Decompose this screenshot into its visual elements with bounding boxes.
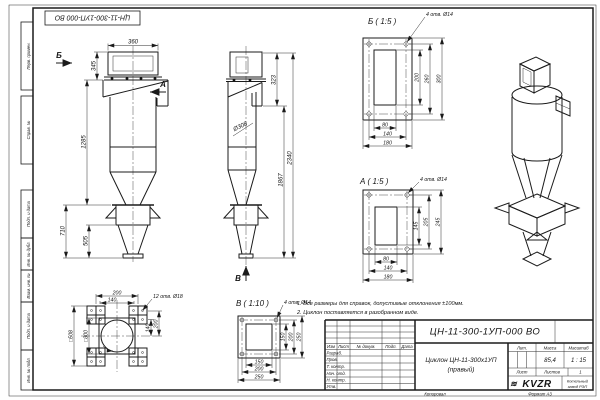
- bottom-dim-200-right: 200: [154, 320, 160, 330]
- detail-a-dim-140: 140: [384, 266, 393, 272]
- drawing-sheet: Перв. примен. Справ. № Подп. и дата Инв.…: [0, 0, 600, 400]
- tb-scale-value: 1 : 15: [571, 358, 587, 364]
- front-view: 360 345 1285 710 505 Б А: [56, 40, 168, 263]
- detail-a-dim-145: 145: [414, 222, 420, 231]
- bottom-dim-200-top: 200: [112, 291, 122, 297]
- tb-company-line2: завод РЭП: [567, 384, 588, 389]
- front-dim-710: 710: [61, 225, 67, 236]
- bottom-holes-label: 12 отв. Ø18: [153, 294, 183, 300]
- detail-a-dim-80: 80: [383, 257, 389, 263]
- side-dim-dia308: Ø308: [232, 121, 249, 134]
- tb-row-utv: Утв.: [327, 384, 337, 389]
- detail-b-dim-200: 200: [415, 73, 421, 83]
- tb-row-tkontr: Т. контр.: [327, 364, 346, 369]
- margin-label-vzam: Взам. инв. №: [26, 273, 31, 299]
- margin-label-podp1: Подп. и дата: [26, 200, 31, 226]
- note-2: 2. Циклон поставляется в разобранном вид…: [296, 310, 419, 316]
- detail-b-holes-label: 4 отв. Ø14: [426, 12, 453, 18]
- margin-label-inv-podl: Инв. № подл.: [26, 357, 31, 382]
- front-arrow-b-label: Б: [56, 51, 62, 60]
- tb-sheets-value: 1: [579, 370, 582, 375]
- bottom-dim-140-top: 140: [108, 298, 117, 304]
- detail-v-dim-150r: 150: [281, 333, 287, 342]
- side-arrow-v-label: В: [235, 274, 241, 283]
- detail-view-b: Б ( 1:5 ) 4 отв. Ø14 200 260 300 80 140 …: [363, 12, 453, 149]
- side-dim-323: 323: [272, 74, 278, 85]
- detail-b-title: Б ( 1:5 ): [368, 17, 397, 26]
- bottom-view: 200 140 12 отв. Ø18 140 200 □300 □508: [69, 291, 183, 373]
- tb-row-prov: Пров.: [327, 357, 338, 362]
- tb-col-docnum: № докум.: [357, 344, 376, 349]
- detail-a-dim-205: 205: [424, 218, 430, 228]
- detail-v-title: В ( 1:10 ): [236, 299, 269, 308]
- side-dim-1867: 1867: [279, 173, 285, 187]
- top-stamp-doc-number: ЦН-11-300-1УП-000 ВО: [54, 14, 130, 21]
- tb-mass-label: Масса: [544, 346, 557, 351]
- tb-col-podp: Подп.: [385, 344, 396, 349]
- detail-a-title: А ( 1:5 ): [359, 177, 389, 186]
- technical-notes: 1. Все размеры для справок, допустимые о…: [296, 301, 464, 316]
- front-arrow-a-label: А: [159, 80, 166, 89]
- bottom-dim-sq508: □508: [69, 330, 75, 342]
- front-dim-505: 505: [84, 235, 90, 246]
- tb-scale-label: Масштаб: [568, 346, 589, 351]
- bottom-dim-sq300: □300: [84, 330, 90, 342]
- tb-mass-value: 85,4: [544, 358, 556, 364]
- title-block: Изм Лист № докум. Подп. Дата Разраб. Про…: [325, 320, 593, 390]
- detail-v-dim-200b: 200: [254, 367, 264, 373]
- detail-b-dim-80: 80: [382, 123, 388, 129]
- detail-b-dim-180: 180: [383, 141, 392, 147]
- detail-b-dim-300: 300: [437, 75, 443, 84]
- margin-label-inv-dubl: Инв. № дубл.: [26, 241, 31, 266]
- logo-wave-icon: ≋: [510, 380, 518, 389]
- note-1: 1. Все размеры для справок, допустимые о…: [297, 301, 464, 307]
- detail-v-dim-250b: 250: [254, 375, 264, 381]
- company-logo: KVZR: [522, 379, 552, 390]
- detail-v-dim-150b: 150: [255, 360, 264, 366]
- tb-doc-number: ЦН-11-300-1УП-000 ВО: [430, 327, 541, 338]
- tb-col-izm: Изм: [327, 344, 335, 349]
- tb-row-nachotd: Нач. отд.: [327, 371, 346, 376]
- detail-a-dim-245: 245: [436, 218, 442, 228]
- tb-row-razrab: Разраб.: [327, 351, 343, 356]
- detail-v-dim-200r: 200: [289, 333, 295, 343]
- tb-company-line1: Котельный: [567, 379, 589, 384]
- tb-col-list: Лист: [337, 344, 349, 349]
- drawing-canvas: Перв. примен. Справ. № Подп. и дата Инв.…: [0, 0, 600, 400]
- front-dim-345: 345: [92, 60, 98, 71]
- detail-b-dim-260: 260: [425, 75, 431, 85]
- detail-b-dim-140: 140: [383, 132, 392, 138]
- front-dim-1285: 1285: [82, 135, 88, 149]
- bottom-dim-140-right: 140: [146, 324, 152, 333]
- detail-view-a: А ( 1:5 ) 4 отв. Ø14 145 205 245 80 140 …: [359, 177, 447, 283]
- tb-sheet-label: Лист: [515, 370, 527, 375]
- detail-a-dim-180: 180: [384, 275, 393, 281]
- footer-copied: Копировал: [424, 392, 446, 397]
- margin-label-perv: Перв. примен.: [26, 42, 31, 69]
- tb-sheets-label: Листов: [543, 370, 560, 375]
- front-dim-360: 360: [128, 40, 139, 46]
- side-view: Ø308 323 1867 2340 В: [224, 46, 296, 283]
- side-dim-2340: 2340: [288, 151, 294, 166]
- detail-a-holes-label: 4 отв. Ø14: [420, 177, 447, 183]
- tb-col-data: Дата: [400, 344, 413, 349]
- tb-name-line2: (правый): [448, 366, 475, 374]
- margin-label-podp2: Подп. и дата: [26, 312, 31, 338]
- footer-format: Формат А3: [528, 392, 552, 397]
- tb-row-nkontr: Н. контр.: [327, 378, 346, 383]
- tb-lit-label: Лит.: [516, 346, 527, 351]
- tb-name-line1: Циклон ЦН-11-300х1УП: [425, 357, 496, 364]
- margin-label-sprav: Справ. №: [26, 120, 31, 139]
- detail-v-dim-250r: 250: [297, 333, 303, 343]
- isometric-view: [495, 57, 579, 266]
